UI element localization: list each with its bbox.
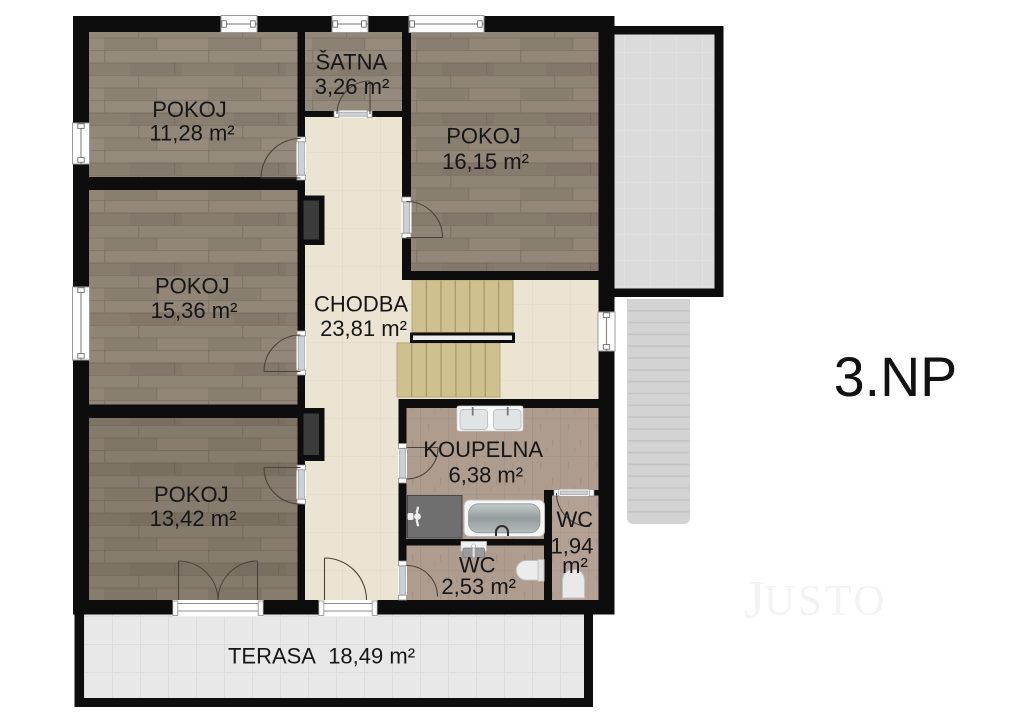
svg-text:2,53 m²: 2,53 m² — [441, 574, 516, 599]
svg-text:11,28 m²: 11,28 m² — [149, 121, 234, 146]
svg-text:POKOJ: POKOJ — [152, 97, 227, 122]
svg-text:POKOJ: POKOJ — [154, 482, 229, 507]
svg-text:J: J — [744, 570, 765, 630]
svg-text:POKOJ: POKOJ — [446, 124, 521, 149]
svg-text:TERASA 18,49 m²: TERASA 18,49 m² — [228, 644, 415, 669]
svg-text:POKOJ: POKOJ — [155, 274, 230, 299]
svg-text:CHODBA: CHODBA — [314, 291, 408, 316]
svg-text:3,26 m²: 3,26 m² — [315, 74, 390, 99]
svg-text:m²: m² — [562, 553, 588, 578]
svg-text:WC: WC — [556, 507, 593, 532]
svg-text:3.NP: 3.NP — [834, 346, 957, 408]
svg-text:6,38 m²: 6,38 m² — [449, 462, 524, 487]
svg-text:ŠATNA: ŠATNA — [315, 49, 387, 74]
svg-text:15,36 m²: 15,36 m² — [151, 298, 238, 323]
svg-text:KOUPELNA: KOUPELNA — [423, 437, 543, 462]
svg-text:23,81 m²: 23,81 m² — [320, 316, 407, 341]
svg-text:16,15 m²: 16,15 m² — [442, 149, 529, 174]
svg-text:USTO: USTO — [764, 578, 888, 625]
svg-text:13,42 m²: 13,42 m² — [150, 506, 237, 531]
